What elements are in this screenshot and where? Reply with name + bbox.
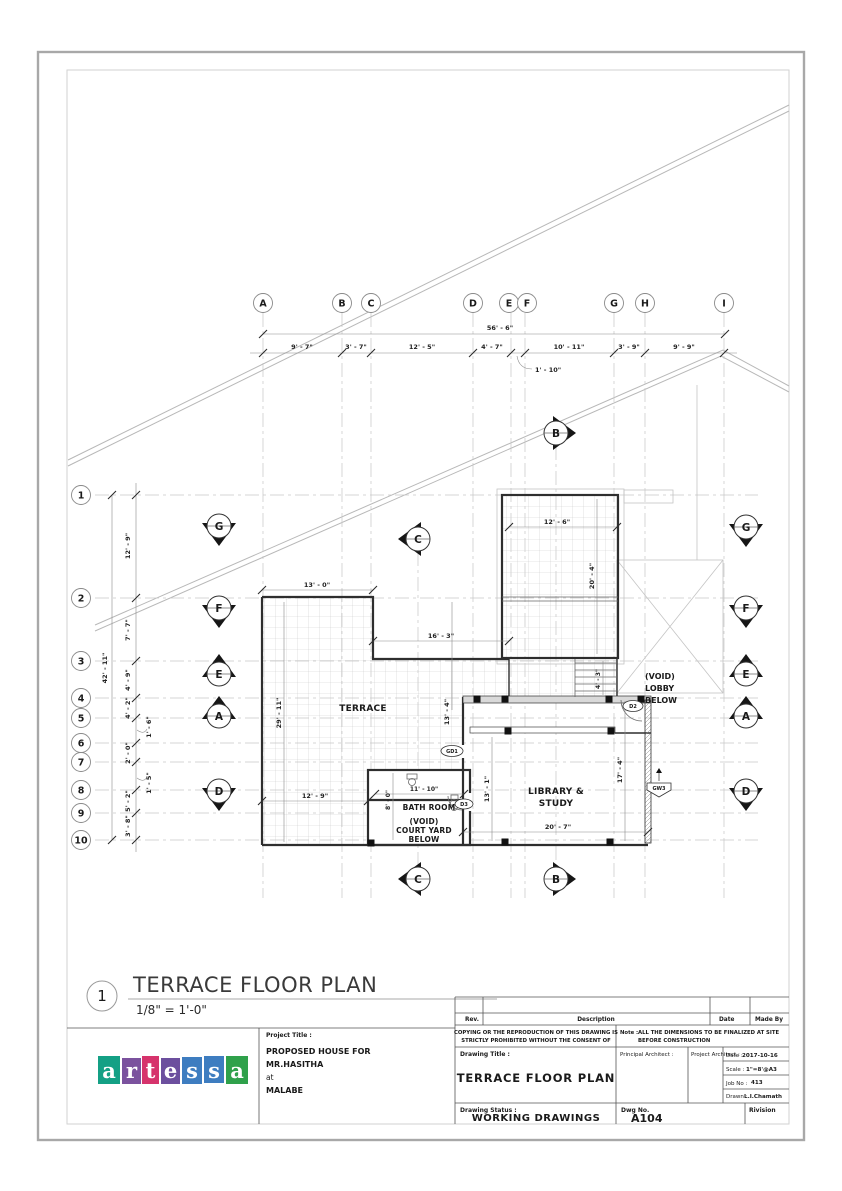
tag-gw3-label: GW3 — [652, 786, 666, 792]
column-bubble-D: D — [464, 294, 483, 313]
section-marker-f-right-label: F — [742, 603, 749, 615]
dim-12-6: 12' - 6" — [544, 518, 570, 526]
project-title-line-2: at — [266, 1073, 274, 1082]
dim-top-offset: 1' - 10" — [535, 366, 561, 374]
job-no-label: Job No : — [725, 1081, 747, 1087]
room-label-court-2: BELOW — [409, 835, 441, 844]
dim-top-overall: 56' - 6" — [487, 324, 513, 332]
section-marker-b-top-label: B — [552, 428, 560, 440]
row-bubble-9: 9 — [72, 804, 91, 823]
dim-29-11: 29' - 11" — [275, 698, 283, 729]
dim-4-3: 4' - 3" — [595, 669, 602, 689]
room-label-library-1: STUDY — [539, 799, 574, 809]
section-marker-c-bottom: C — [398, 862, 430, 896]
row-bubble-label-7: 7 — [78, 758, 85, 769]
dim-left-overall: 42' - 11" — [101, 653, 109, 684]
note-line-1: BEFORE CONSTRUCTION — [638, 1038, 710, 1044]
row-bubble-label-5: 5 — [78, 714, 85, 725]
view-number: 1 — [97, 987, 107, 1005]
drawing-title-label: Drawing Title : — [460, 1051, 510, 1058]
section-marker-a-left: A — [202, 696, 236, 728]
column-bubble-label-g: G — [610, 299, 618, 310]
dim-top-seg-4: 10' - 11" — [554, 343, 585, 351]
section-marker-b-bottom: B — [544, 862, 576, 896]
job-no-value: 413 — [751, 1080, 763, 1086]
logo-letter-1: r — [126, 1058, 138, 1083]
column-bubble-label-b: B — [338, 299, 345, 310]
note-line-0: ALL THE DIMENSIONS TO BE FINALIZED AT SI… — [638, 1030, 779, 1036]
section-marker-g-right-label: G — [742, 522, 751, 534]
room-label-terrace: TERRACE — [339, 704, 387, 714]
column-bubble-label-d: D — [469, 299, 477, 310]
left-dimension-chain: 42' - 11" 12' - 9" 7' - 7" 4' - 9" 4' - … — [101, 483, 153, 852]
section-marker-e-right-label: E — [742, 669, 749, 681]
principal-architect-label: Principal Architect : — [620, 1052, 674, 1058]
row-bubble-5: 5 — [72, 709, 91, 728]
column-bubble-H: H — [636, 294, 655, 313]
dim-13-4: 13' - 4" — [443, 699, 451, 725]
column-bubble-G: G — [605, 294, 624, 313]
row-bubble-label-2: 2 — [78, 594, 85, 605]
section-marker-c-bottom-label: C — [414, 874, 422, 886]
project-title-line-0: PROPOSED HOUSE FOR — [266, 1047, 371, 1056]
row-bubble-2: 2 — [72, 589, 91, 608]
tag-d3: D3 — [455, 799, 473, 809]
artessa-logo: a r t e s s a — [98, 1056, 248, 1084]
section-marker-g-left: G — [202, 514, 236, 546]
section-marker-c-top-label: C — [414, 534, 422, 546]
dim-20-4: 20' - 4" — [588, 563, 596, 589]
column-bubble-F: F — [518, 294, 537, 313]
section-marker-g-left-label: G — [215, 521, 224, 533]
revision-label: Rivision — [749, 1107, 776, 1114]
dim-left-offset-0: 1' - 6" — [145, 716, 153, 738]
dim-top-seg-3: 4' - 7" — [481, 343, 503, 351]
stair-rail — [470, 727, 615, 733]
rev-header-description: Description — [577, 1017, 615, 1023]
tag-gd1-label: GD1 — [446, 749, 458, 755]
dim-top-seg-6: 9' - 9" — [673, 343, 695, 351]
drawing-title-value: TERRACE FLOOR PLAN — [457, 1071, 615, 1085]
section-marker-a-right-label: A — [742, 711, 751, 723]
railing-band — [463, 696, 651, 703]
column-bubble-I: I — [715, 294, 734, 313]
section-marker-e-left: E — [202, 654, 236, 686]
dim-top-seg-0: 9' - 7" — [291, 343, 313, 351]
row-bubble-label-4: 4 — [78, 694, 85, 705]
dim-11-10: 11' - 10" — [410, 786, 438, 793]
view-title-block: 1 TERRACE FLOOR PLAN 1/8" = 1'-0" — [87, 973, 497, 1017]
view-scale: 1/8" = 1'-0" — [136, 1003, 207, 1017]
dim-left-seg-5: 5' - 2" — [124, 790, 132, 812]
section-marker-a-left-label: A — [215, 711, 224, 723]
row-bubble-label-9: 9 — [78, 809, 85, 820]
column-bubble-label-h: H — [641, 299, 649, 310]
section-marker-e-left-label: E — [215, 669, 222, 681]
note-label: Note : — [620, 1030, 638, 1036]
terrace-floor-plan-drawing: A B C D E F G H I 1 2 3 4 5 6 7 8 9 10 5… — [0, 0, 842, 1191]
dim-left-seg-3: 4' - 2" — [124, 697, 132, 719]
glass-wall-gw3 — [645, 700, 651, 843]
tag-d3-label: D3 — [460, 802, 468, 808]
row-bubble-label-6: 6 — [78, 739, 85, 750]
column-bubble-E: E — [500, 294, 519, 313]
row-bubble-3: 3 — [72, 652, 91, 671]
row-bubble-8: 8 — [72, 781, 91, 800]
rev-header-made-by: Made By — [755, 1017, 783, 1023]
drawing-sheet: A B C D E F G H I 1 2 3 4 5 6 7 8 9 10 5… — [0, 0, 842, 1191]
site-boundary-lines — [68, 105, 789, 631]
dim-top-seg-2: 12' - 5" — [409, 343, 435, 351]
dim-8-0: 8' - 0" — [385, 790, 392, 810]
drawn-value: L.I.Chamath — [744, 1094, 782, 1100]
room-label-library-0: LIBRARY & — [528, 787, 584, 797]
top-dimension-chain: 56' - 6" 9' - 7" 3' - 7" 12' - 5" 4' - 7… — [250, 324, 737, 374]
row-bubble-10: 10 — [72, 831, 91, 850]
dim-left-seg-2: 4' - 9" — [124, 669, 132, 691]
rev-header-rev: Rev. — [465, 1017, 479, 1023]
column-bubbles: A B C D E F G H I — [254, 294, 734, 313]
room-label-court-0: (VOID) — [409, 817, 438, 826]
section-marker-d-right-label: D — [742, 786, 751, 798]
section-marker-f-right: F — [729, 596, 763, 628]
column-bubble-label-e: E — [506, 299, 513, 310]
room-label-lobby-0: (VOID) — [645, 672, 675, 681]
section-marker-a-right: A — [729, 696, 763, 728]
dim-17-4: 17' - 4" — [616, 757, 624, 783]
dwg-no-value: A104 — [631, 1112, 663, 1125]
project-title-label: Project Title : — [266, 1032, 312, 1039]
section-marker-b-bottom-label: B — [552, 874, 560, 886]
section-marker-f-left-label: F — [215, 603, 222, 615]
project-title-line-3: MALABE — [266, 1086, 303, 1095]
section-marker-f-left: F — [202, 596, 236, 628]
column-bubble-label-c: C — [368, 299, 375, 310]
dim-top-seg-5: 3' - 9" — [618, 343, 640, 351]
row-bubble-6: 6 — [72, 734, 91, 753]
logo-letter-3: e — [164, 1058, 177, 1083]
row-bubbles: 1 2 3 4 5 6 7 8 9 10 — [72, 486, 91, 850]
column-bubble-B: B — [333, 294, 352, 313]
row-bubble-4: 4 — [72, 689, 91, 708]
copyright-line-1: STRICTLY PROHIBITED WITHOUT THE CONSENT … — [461, 1038, 611, 1044]
dim-16-3: 16' - 3" — [428, 632, 454, 640]
void-lobby-area — [617, 385, 723, 693]
section-marker-g-right: G — [729, 515, 763, 547]
section-marker-d-left-label: D — [215, 786, 224, 798]
room-label-bathroom: BATH ROOM — [403, 803, 456, 812]
tag-d2: D2 — [623, 701, 643, 712]
dim-left-seg-6: 3' - 8" — [124, 815, 132, 837]
row-bubble-label-8: 8 — [78, 786, 85, 797]
column-bubble-label-i: I — [722, 299, 726, 310]
floor-plan: 13' - 0" 16' - 3" 12' - 6" 12' - 9" 11' … — [258, 385, 723, 847]
date-label: Date : — [726, 1053, 743, 1059]
room-label-lobby-2: BELOW — [645, 696, 677, 705]
logo-letter-0: a — [102, 1058, 116, 1083]
room-label-lobby-1: LOBBY — [645, 684, 674, 693]
row-bubble-label-1: 1 — [78, 491, 85, 502]
view-title: TERRACE FLOOR PLAN — [132, 973, 377, 997]
logo-letter-5: s — [208, 1058, 220, 1083]
row-bubble-label-3: 3 — [78, 657, 85, 668]
row-bubble-1: 1 — [72, 486, 91, 505]
section-marker-e-right: E — [729, 654, 763, 686]
tag-gd1: GD1 — [441, 746, 463, 757]
column-bubble-A: A — [254, 294, 273, 313]
column-bubble-C: C — [362, 294, 381, 313]
dim-left-seg-1: 7' - 7" — [124, 619, 132, 641]
section-marker-d-right: D — [729, 779, 763, 811]
date-value: 2017-10-16 — [742, 1053, 778, 1059]
copyright-line-0: COPYING OR THE REPRODUCTION OF THIS DRAW… — [454, 1030, 618, 1036]
scale-value: 1"=8'@A3 — [746, 1067, 777, 1073]
dim-12-9: 12' - 9" — [302, 792, 328, 800]
logo-letter-6: a — [230, 1058, 244, 1083]
drawing-status-value: WORKING DRAWINGS — [472, 1113, 601, 1124]
row-bubble-label-10: 10 — [74, 836, 88, 847]
dim-left-seg-4: 2' - 0" — [124, 742, 132, 764]
logo-letter-2: t — [146, 1058, 156, 1083]
dim-top-seg-1: 3' - 7" — [345, 343, 367, 351]
tag-d2-label: D2 — [629, 704, 637, 710]
section-marker-c-top: C — [398, 522, 430, 556]
dim-left-offset-1: 1' - 5" — [145, 772, 153, 794]
column-bubble-label-f: F — [524, 299, 531, 310]
row-bubble-7: 7 — [72, 753, 91, 772]
rev-header-date: Date — [719, 1017, 734, 1023]
dim-20-7: 20' - 7" — [545, 823, 571, 831]
room-label-court-1: COURT YARD — [396, 826, 452, 835]
logo-letter-4: s — [186, 1058, 198, 1083]
project-title-line-1: MR.HASITHA — [266, 1060, 324, 1069]
dim-left-seg-0: 12' - 9" — [124, 533, 132, 559]
dim-13-1: 13' - 1" — [483, 776, 491, 802]
column-bubble-label-a: A — [259, 299, 267, 310]
scale-label: Scale : — [726, 1067, 745, 1073]
section-marker-d-left: D — [202, 779, 236, 811]
dim-13-0: 13' - 0" — [304, 581, 330, 589]
